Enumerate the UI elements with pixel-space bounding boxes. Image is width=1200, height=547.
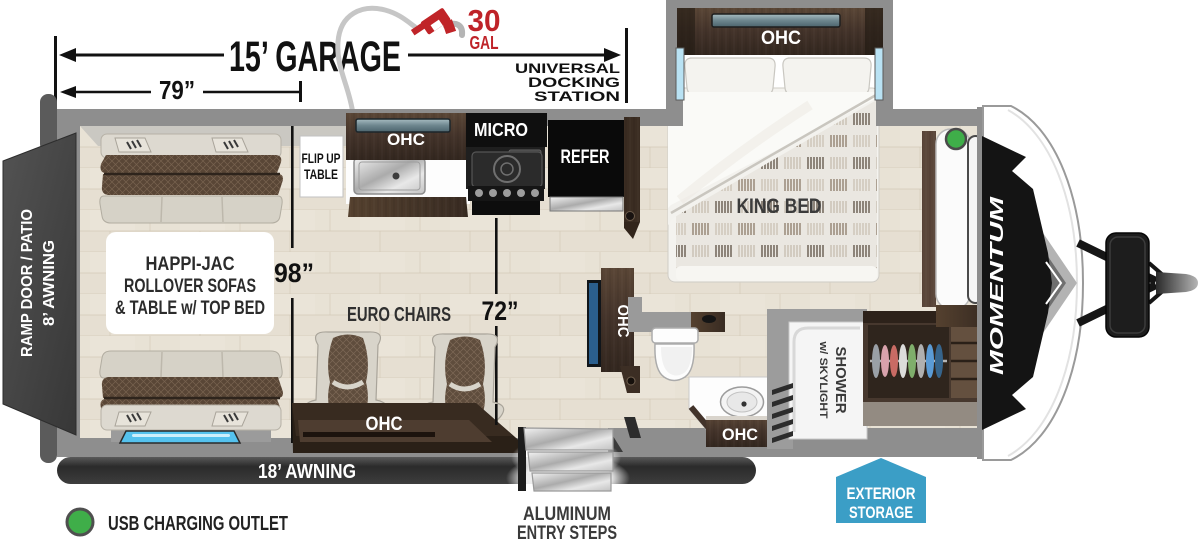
svg-text:STATION: STATION xyxy=(534,88,620,104)
svg-text:98”: 98” xyxy=(274,258,314,288)
svg-text:GAL: GAL xyxy=(470,33,499,53)
svg-text:OHC: OHC xyxy=(366,414,403,435)
svg-text:OHC: OHC xyxy=(761,28,801,49)
svg-text:18’ AWNING: 18’ AWNING xyxy=(258,461,356,483)
svg-text:15’ GARAGE: 15’ GARAGE xyxy=(229,33,401,81)
svg-text:STORAGE: STORAGE xyxy=(849,503,913,522)
svg-text:REFER: REFER xyxy=(561,147,610,168)
svg-text:TABLE: TABLE xyxy=(304,167,338,182)
svg-text:FLIP UP: FLIP UP xyxy=(302,151,341,166)
svg-text:USB CHARGING OUTLET: USB CHARGING OUTLET xyxy=(108,513,288,535)
svg-text:ALUMINUM: ALUMINUM xyxy=(523,504,611,525)
svg-text:ENTRY STEPS: ENTRY STEPS xyxy=(517,523,617,544)
svg-text:MOMENTUM: MOMENTUM xyxy=(986,196,1007,375)
svg-text:MICRO: MICRO xyxy=(474,120,528,140)
svg-text:HAPPI-JAC: HAPPI-JAC xyxy=(146,254,235,275)
svg-text:w/ SKYLIGHT: w/ SKYLIGHT xyxy=(817,340,829,418)
svg-text:8’ AWNING: 8’ AWNING xyxy=(41,240,58,326)
svg-text:SHOWER: SHOWER xyxy=(832,347,849,414)
svg-text:72”: 72” xyxy=(482,296,519,326)
svg-text:79”: 79” xyxy=(159,75,195,105)
svg-text:OHC: OHC xyxy=(387,130,425,149)
svg-text:EXTERIOR: EXTERIOR xyxy=(847,484,916,503)
svg-text:& TABLE w/ TOP BED: & TABLE w/ TOP BED xyxy=(115,298,265,319)
svg-text:KING BED: KING BED xyxy=(737,195,822,218)
svg-text:OHC: OHC xyxy=(722,425,758,444)
svg-text:RAMP DOOR / PATIO: RAMP DOOR / PATIO xyxy=(19,209,36,357)
svg-text:ROLLOVER SOFAS: ROLLOVER SOFAS xyxy=(124,276,256,297)
svg-text:EURO CHAIRS: EURO CHAIRS xyxy=(347,304,451,326)
